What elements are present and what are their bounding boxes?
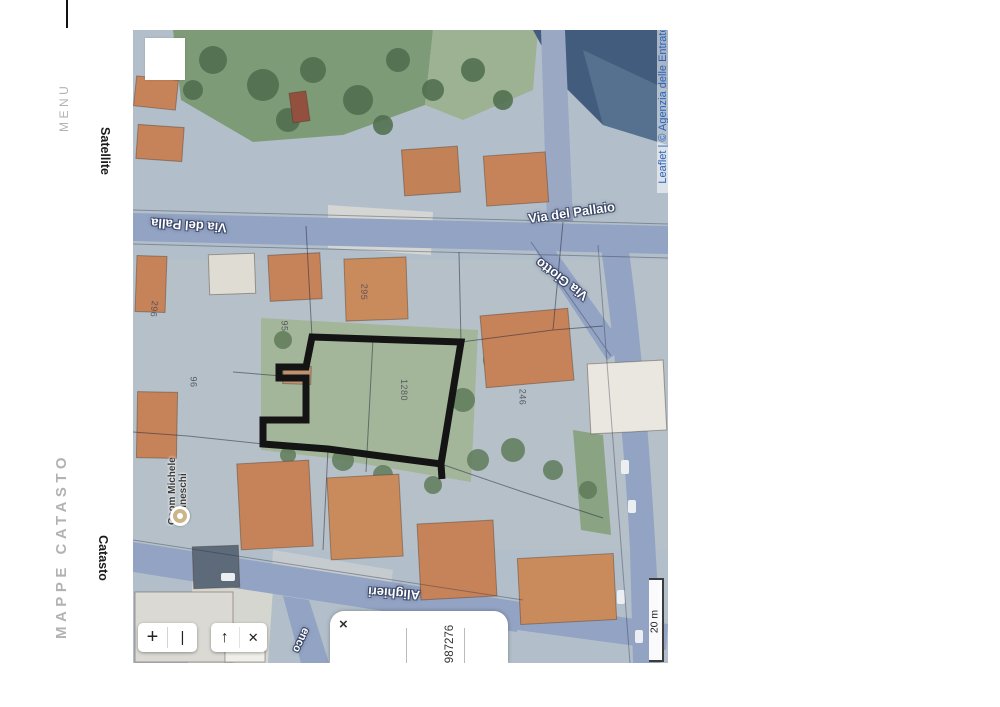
close-button[interactable]: ✕ xyxy=(240,623,268,652)
leaflet-attribution[interactable]: Leaflet | © Agenzia delle Entrate xyxy=(657,30,668,193)
tab-catasto[interactable]: Catasto xyxy=(94,535,110,581)
zoom-control[interactable]: + | xyxy=(138,623,197,652)
parcel-number-296: 296 xyxy=(149,300,160,317)
satellite-map[interactable]: Via del Pallaio Via del Palla Via Giotto… xyxy=(133,30,668,663)
pan-close-control[interactable]: ↑ ✕ xyxy=(211,623,267,652)
menu-label[interactable]: MENU xyxy=(57,84,73,132)
parcel-popup[interactable]: × 987276 xyxy=(330,611,508,663)
parcel-number-96: 96 xyxy=(189,376,199,387)
scale-bar: 20 m xyxy=(649,578,664,662)
parcel-number-95: 95 xyxy=(280,320,290,331)
parcel-number-1280: 1280 xyxy=(399,379,409,401)
poi-marker-icon[interactable] xyxy=(170,506,190,526)
pan-arrow-button[interactable]: ↑ xyxy=(211,623,239,652)
popup-close-icon[interactable]: × xyxy=(339,616,348,633)
parcel-number-246: 246 xyxy=(517,389,527,406)
parcel-number-295: 295 xyxy=(359,284,370,301)
scanned-page: { "page": {"background": "#ffffff"}, "le… xyxy=(0,0,1000,707)
scan-edge-line xyxy=(66,0,68,28)
tab-satellite[interactable]: Satellite xyxy=(96,114,112,188)
zoom-in-button[interactable]: + xyxy=(138,623,167,652)
zoom-out-button[interactable]: | xyxy=(168,623,197,652)
popup-divider xyxy=(464,628,465,663)
app-title: MAPPE CATASTO xyxy=(53,448,71,644)
scale-label: 20 m xyxy=(649,582,664,662)
blank-white-box xyxy=(145,38,185,80)
satellite-imagery xyxy=(133,30,668,663)
popup-divider xyxy=(406,628,407,663)
popup-parcel-id: 987276 xyxy=(444,624,458,663)
